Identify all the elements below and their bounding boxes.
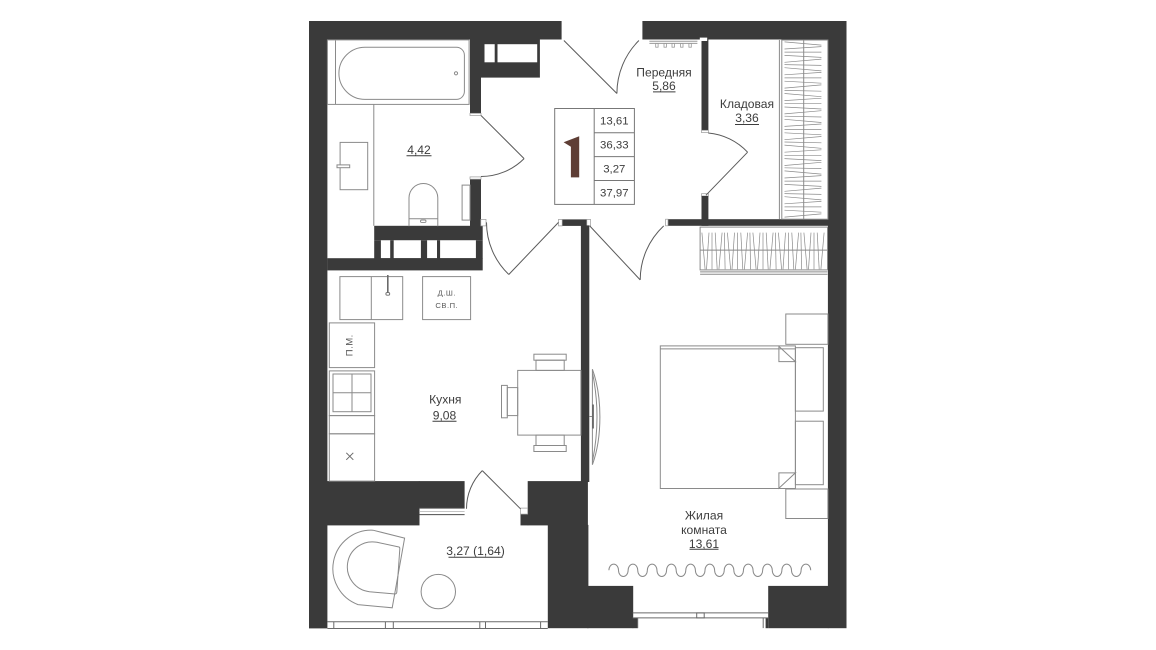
svg-text:3,27 (1,64): 3,27 (1,64) [446, 544, 505, 558]
svg-text:СВ.П.: СВ.П. [435, 301, 458, 310]
svg-text:5,86: 5,86 [652, 79, 676, 93]
svg-text:Жилая: Жилая [685, 509, 723, 523]
svg-text:П.М.: П.М. [345, 334, 356, 356]
svg-text:36,33: 36,33 [600, 140, 629, 152]
svg-text:Кладовая: Кладовая [720, 97, 774, 111]
svg-text:37,97: 37,97 [600, 187, 629, 199]
svg-text:Передняя: Передняя [636, 66, 691, 80]
svg-text:3,27: 3,27 [603, 164, 625, 176]
svg-text:Д.Ш.: Д.Ш. [438, 288, 456, 297]
svg-text:3,36: 3,36 [735, 111, 759, 125]
svg-text:9,08: 9,08 [433, 408, 457, 422]
svg-text:4,42: 4,42 [407, 143, 431, 157]
svg-text:комната: комната [681, 523, 727, 537]
svg-text:13,61: 13,61 [600, 116, 629, 128]
svg-text:Кухня: Кухня [429, 393, 461, 407]
